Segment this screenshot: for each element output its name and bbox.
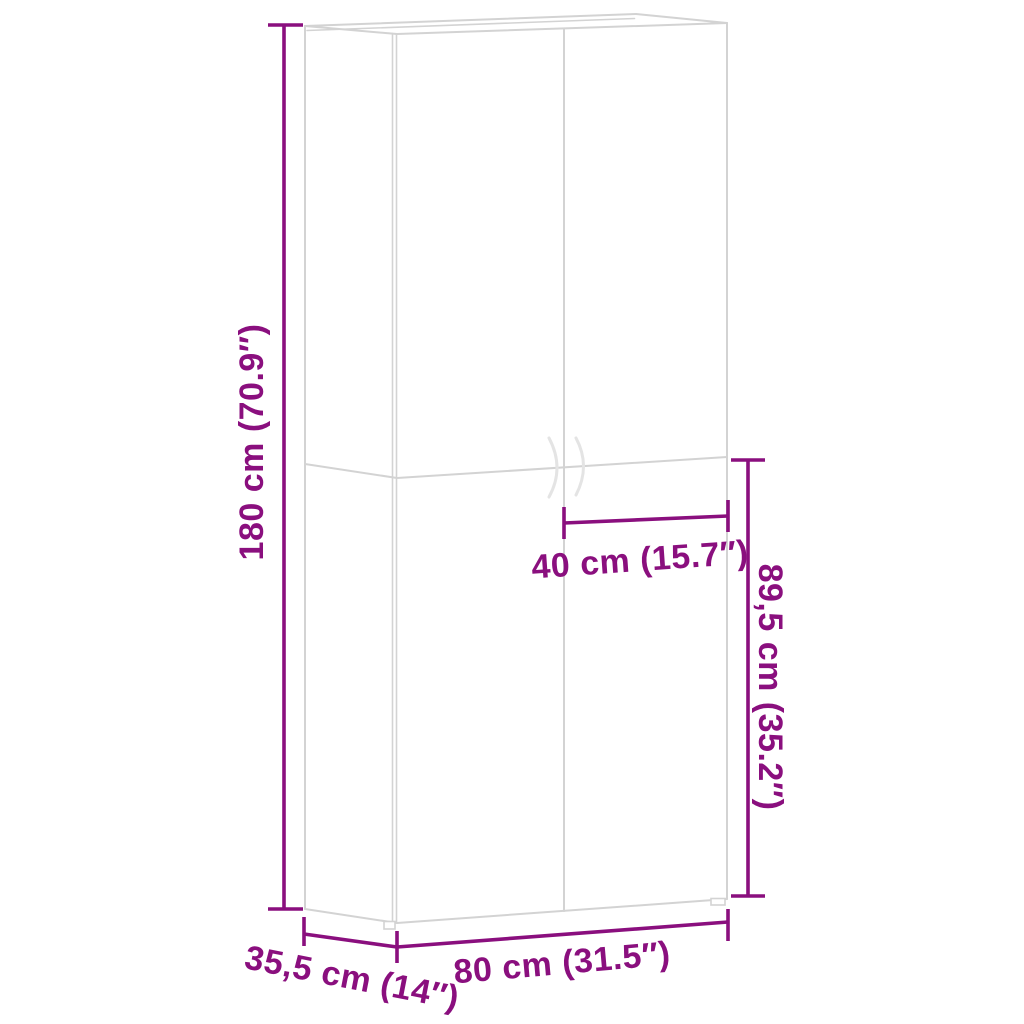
depth-line xyxy=(304,934,397,947)
depth-label: 35,5 cm (14″) xyxy=(242,939,463,1018)
front-right-foot xyxy=(711,899,725,906)
product-dimension-diagram: 180 cm (70.9″) 89,5 cm (35.2″) 40 cm (15… xyxy=(0,0,1024,1024)
door-width-line xyxy=(564,516,728,523)
shelf-line xyxy=(305,457,727,478)
door-width-dimension-line xyxy=(564,500,728,539)
wardrobe-dimension-drawing: 180 cm (70.9″) 89,5 cm (35.2″) 40 cm (15… xyxy=(0,0,1024,1024)
front-left-foot xyxy=(384,922,395,930)
height-label: 180 cm (70.9″) xyxy=(233,324,271,561)
dimension-lines xyxy=(268,25,765,963)
lower-section-height-label: 89,5 cm (35.2″) xyxy=(751,564,789,811)
dimension-labels: 180 cm (70.9″) 89,5 cm (35.2″) 40 cm (15… xyxy=(233,324,789,1018)
height-dimension-line xyxy=(268,25,303,909)
wardrobe-outline xyxy=(305,14,727,929)
width-label: 80 cm (31.5″) xyxy=(452,935,672,992)
front-bottom-edge xyxy=(397,899,727,923)
